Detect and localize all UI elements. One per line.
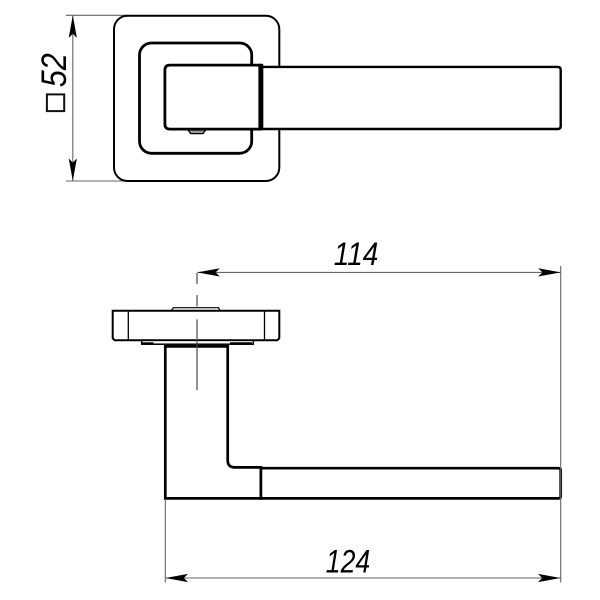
svg-text:124: 124 [326, 544, 370, 580]
svg-text:114: 114 [334, 237, 379, 272]
svg-text:52: 52 [34, 53, 73, 87]
